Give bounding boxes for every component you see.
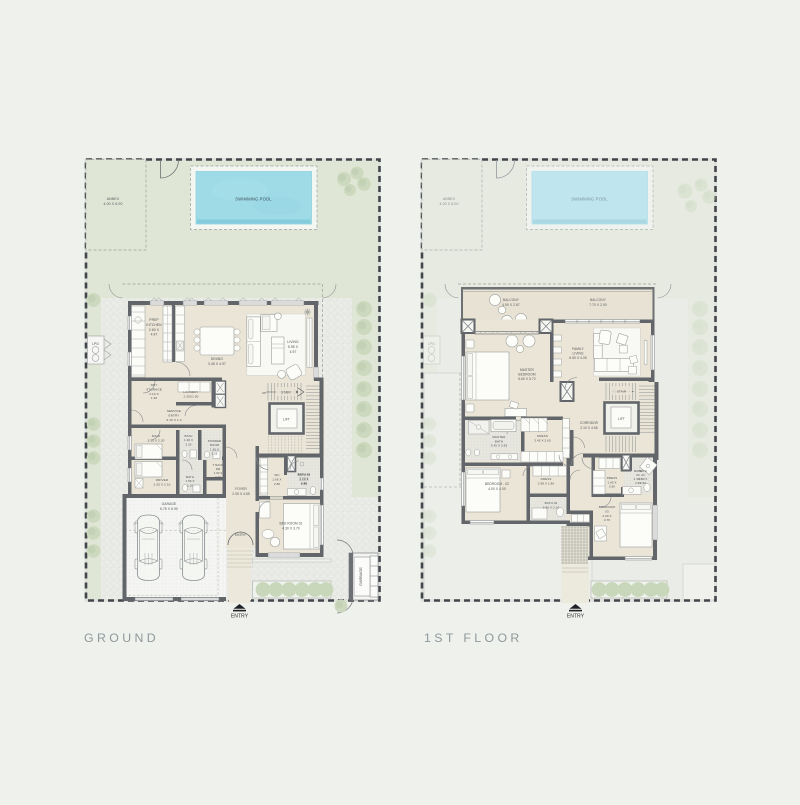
svg-text:ENTRY: ENTRY [235, 533, 247, 537]
svg-text:GARAGE6.75 X 6.90: GARAGE6.75 X 6.90 [160, 502, 178, 511]
svg-text:LIFT: LIFT [283, 418, 290, 422]
svg-text:SERVICEENTRY6.15 X 1.3: SERVICEENTRY6.15 X 1.3 [166, 409, 181, 422]
svg-text:MASTERBEDROOM5.60 X 5.72: MASTERBEDROOM5.60 X 5.72 [518, 368, 536, 381]
svg-text:UP: UP [262, 391, 266, 395]
svg-text:LIFT: LIFT [618, 417, 625, 421]
svg-text:CORRIDOR2.10 X 4.65: CORRIDOR2.10 X 4.65 [580, 421, 599, 430]
svg-text:SWIMMING POOL: SWIMMING POOL [235, 197, 272, 202]
svg-text:GARBAGE: GARBAGE [359, 567, 363, 586]
svg-text:1ST FLOOR: 1ST FLOOR [424, 631, 523, 645]
svg-text:GROUND: GROUND [84, 631, 159, 645]
svg-text:ENTRY: ENTRY [567, 614, 585, 620]
svg-text:STAIR: STAIR [617, 390, 627, 394]
svg-text:LPG: LPG [428, 342, 435, 346]
svg-text:BALCONY7.70 X 2.90: BALCONY7.70 X 2.90 [589, 298, 607, 307]
svg-text:SWIMMING POOL: SWIMMING POOL [571, 197, 608, 202]
svg-text:BATH 022.96 X 2.10: BATH 022.96 X 2.10 [543, 501, 560, 509]
svg-text:STAIR: STAIR [281, 391, 291, 395]
svg-text:BEDROOM - 024.00 X 4.00: BEDROOM - 024.00 X 4.00 [485, 482, 509, 491]
svg-text:BALCONY4.90 X 2.87: BALCONY4.90 X 2.87 [502, 298, 520, 307]
svg-text:ENTRY: ENTRY [231, 614, 249, 620]
svg-text:BED ROOM 014.30 X 3.70: BED ROOM 014.30 X 3.70 [280, 522, 303, 531]
svg-text:DRIVER3.35 X 2.10: DRIVER3.35 X 2.10 [154, 478, 171, 487]
svg-text:LAUNDRY2.35X1.50: LAUNDRY2.35X1.50 [183, 390, 198, 399]
svg-text:LPG: LPG [92, 342, 99, 346]
